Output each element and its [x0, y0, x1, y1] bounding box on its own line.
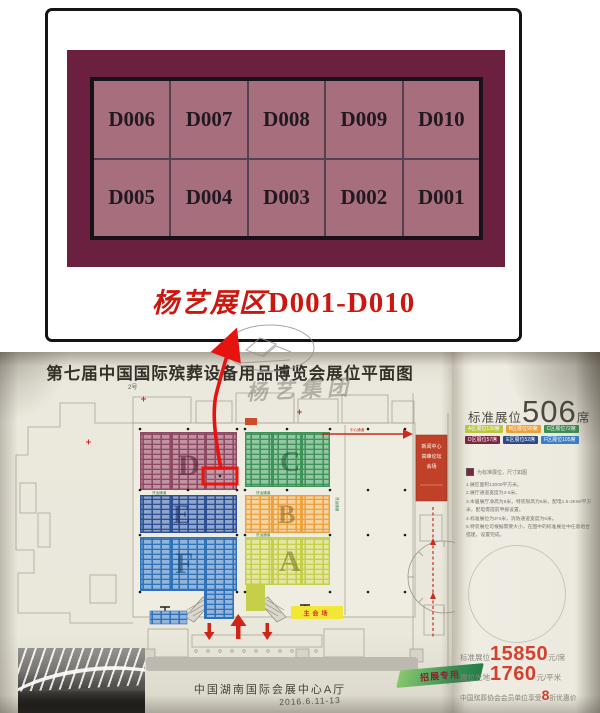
zone-c: C	[245, 432, 330, 487]
booth-cell: D002	[326, 160, 401, 237]
floor-plan-title: 第七届中国国际殡葬设备用品博览会展位平面图	[0, 360, 460, 384]
svg-text:A: A	[279, 545, 301, 578]
svg-text:货运通道: 货运通道	[335, 497, 340, 512]
legend-badge-e: E区展位52席	[503, 436, 538, 444]
note-item: 2.展厅通道宽度为3-6米。	[466, 490, 592, 498]
svg-text:主会场: 主会场	[303, 610, 330, 618]
service-box	[245, 418, 257, 425]
price-value: 15850	[490, 644, 548, 664]
svg-text:货运通道: 货运通道	[256, 490, 271, 495]
price-block: 标准展位 15850 元/席 展位光地 1760 元/平米 中国殡葬协会会员单位…	[460, 644, 598, 703]
legend-badge-a: A区展位130席	[465, 425, 503, 433]
zone-legend: A区展位130席 B区展位90席 C区展位72席 D区展位57席 E区展位52席…	[465, 425, 597, 444]
svg-text:B: B	[278, 500, 295, 529]
booth-cell: D009	[326, 81, 401, 158]
booth-cell: D006	[94, 81, 169, 158]
svg-text:C: C	[280, 447, 300, 478]
booth-key-icon	[466, 468, 474, 476]
entrance-2-label: 2号	[128, 382, 137, 391]
booth-cell: D008	[249, 81, 324, 158]
route-label: 中心通道	[350, 427, 365, 432]
svg-text:新闻中心: 新闻中心	[421, 443, 441, 450]
photo-shadow	[18, 691, 145, 713]
legend-badge-b: B区展位90席	[506, 425, 541, 433]
price-value: 1760	[490, 664, 537, 684]
discount-value: 8	[542, 687, 550, 703]
booth-cell: D005	[94, 160, 169, 237]
price-label: 展位光地	[460, 674, 490, 682]
svg-text:D: D	[178, 449, 200, 482]
svg-text:货运通道: 货运通道	[256, 532, 271, 537]
price-row-standard: 标准展位 15850 元/席	[460, 644, 598, 664]
discount-row: 中国殡葬协会会员单位享受 8 折优惠价	[460, 687, 598, 703]
decorative-circle	[468, 545, 566, 643]
news-center-banner: 新闻中心 高峰论坛 会场	[416, 435, 447, 501]
hall-photo	[18, 648, 145, 713]
stage-box: 主会场	[291, 606, 343, 619]
notes-list: 1.展区面积13000平方米。 2.展厅通道宽度为3-6米。 3.本届展厅净高为…	[466, 482, 592, 541]
price-row-rawspace: 展位光地 1760 元/平米	[460, 664, 598, 684]
highlight-rectangle	[203, 468, 237, 484]
note-item: 1.展区面积13000平方米。	[466, 482, 592, 490]
note-item: 4.标准展位为3*3米，消防通道宽度为6米。	[466, 516, 592, 524]
note-item: 3.本届展厅净高为9米，特装限高为6米，配电1.5-3KW/平方米，配电需提前申…	[466, 499, 592, 516]
legend-badge-c: C区展位72席	[544, 425, 579, 433]
walkway-band	[146, 657, 418, 671]
svg-text:货运通道: 货运通道	[152, 490, 167, 495]
booth-cell: D001	[404, 160, 479, 237]
price-unit: 元/平米	[537, 674, 562, 682]
booth-cell: D003	[249, 160, 324, 237]
heading-number: 506	[522, 396, 577, 427]
price-unit: 元/席	[548, 654, 565, 662]
key-note-text: 为标准展位，尺寸如图	[477, 469, 527, 476]
heading-suffix: 席	[577, 407, 591, 426]
small-booth-block	[150, 611, 187, 624]
legend-badge-d: D区展位57席	[465, 436, 500, 444]
green-ribbon-text: 招展专用	[419, 667, 460, 683]
price-label: 标准展位	[460, 654, 490, 662]
legend-key-note: 为标准展位，尺寸如图	[466, 468, 527, 476]
note-item: 5.特装展位可根据需要大小，在图中的标准展位中任意组合搭建，设置完成。	[466, 524, 592, 541]
booth-cell: D007	[171, 81, 246, 158]
zone-caption-range: D001-D010	[268, 287, 416, 319]
svg-text:F: F	[175, 547, 193, 580]
svg-text:会场: 会场	[426, 463, 436, 470]
svg-text:E: E	[173, 500, 190, 529]
zone-caption-name: 杨艺展区	[152, 288, 268, 318]
zone-caption: 杨艺展区D001-D010	[45, 281, 522, 320]
heading-prefix: 标准展位	[468, 407, 522, 426]
booth-grid: D006 D007 D008 D009 D010 D005 D004 D003 …	[90, 77, 483, 240]
legend-badge-f: F区展位105席	[541, 436, 578, 444]
booth-cell: D004	[171, 160, 246, 237]
booth-cell: D010	[404, 81, 479, 158]
zone-e: E	[140, 495, 237, 533]
discount-prefix: 中国殡葬协会会员单位享受	[460, 692, 542, 702]
svg-text:高峰论坛: 高峰论坛	[421, 453, 441, 460]
zone-b: B	[245, 495, 330, 533]
screenshot-canvas: D006 D007 D008 D009 D010 D005 D004 D003 …	[0, 0, 600, 713]
standard-booths-heading: 标准展位 506 席	[468, 396, 598, 427]
discount-suffix: 折优惠价	[549, 692, 576, 702]
